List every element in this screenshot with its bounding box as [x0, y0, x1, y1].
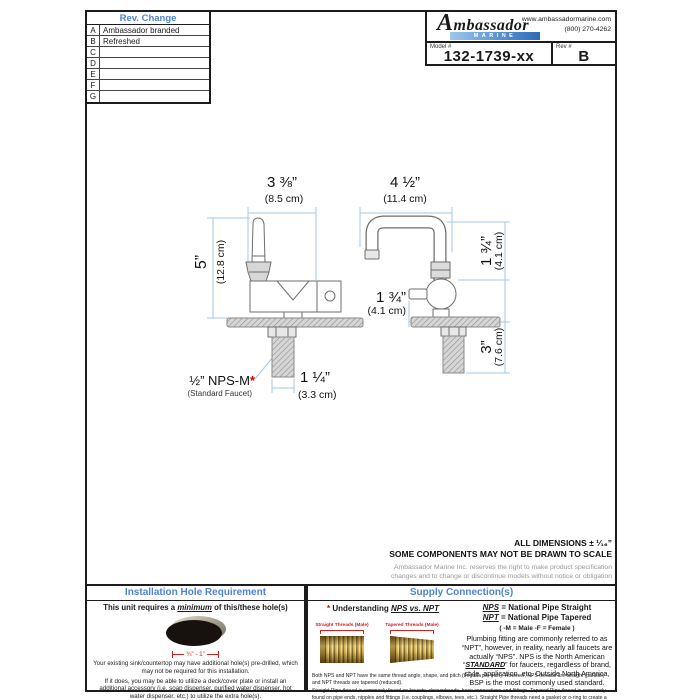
straight-thread-fitting-image: [320, 636, 364, 663]
installation-subtitle: This unit requires a minimum of this/the…: [87, 603, 304, 612]
installation-fine-print: Your existing sink/countertop may have a…: [87, 660, 304, 700]
model-row: Model # 132-1739-xx Rev # B: [427, 43, 615, 64]
supply-panel-title: Supply Connection(s): [308, 586, 615, 601]
pipe-thread-definitions: NPS = National Pipe Straight NPT = Natio…: [458, 603, 616, 632]
straight-threads-label: Straight Threads (Male): [304, 623, 380, 628]
paragraph-em: STANDARD: [465, 660, 505, 669]
subtitle-pre: This unit requires a: [103, 603, 177, 612]
straight-threads-bracket: [320, 630, 364, 634]
rev-change: [100, 47, 209, 57]
model-cell: Model # 132-1739-xx: [427, 43, 553, 64]
rev-change: [100, 69, 209, 79]
table-row: G: [87, 91, 209, 102]
understanding-pre: Understanding: [330, 604, 391, 613]
dim-side-reach-in: 4 ½”: [365, 174, 445, 191]
thread-spec-label: ½” NPS-M*: [117, 373, 255, 388]
hole-dimension-text: ¾” - 1”: [186, 651, 205, 658]
fine-print-line: Straight Pipe thread is commonly found o…: [312, 688, 611, 700]
drawing-notes: ALL DIMENSIONS ± ¹⁄₁₆” SOME COMPONENTS M…: [292, 538, 612, 581]
installation-hole-panel: Installation Hole Requirement This unit …: [85, 584, 306, 692]
installation-panel-title: Installation Hole Requirement: [87, 586, 304, 601]
hole-opening: [166, 620, 222, 646]
table-row: B Refreshed: [87, 36, 209, 47]
supply-connections-panel: Supply Connection(s) * Understanding NPS…: [306, 584, 617, 692]
rev-letter: D: [87, 58, 100, 68]
rev-label: Rev #: [556, 44, 572, 50]
npt-abbr: NPT: [483, 613, 499, 622]
dim-side-below-deck-cm: (7.6 cm): [493, 316, 505, 378]
rev-letter: F: [87, 80, 100, 90]
supply-panel-body: * Understanding NPS vs. NPT Straight Thr…: [308, 601, 615, 690]
nps-def: = National Pipe Straight: [499, 603, 591, 612]
thread-spec-sublabel: (Standard Faucet): [117, 389, 252, 398]
logo-row: Ambassador MARINE www.ambassadormarine.c…: [427, 12, 615, 43]
table-row: D: [87, 58, 209, 69]
npt-def: = National Pipe Tapered: [499, 613, 592, 622]
rev-letter: G: [87, 91, 100, 102]
dim-shank-width-cm: (3.3 cm): [298, 389, 337, 401]
rev-change: [100, 91, 209, 102]
table-row: F: [87, 80, 209, 91]
dim-front-height-cm: (12.8 cm): [215, 227, 227, 297]
tapered-thread-fitting-image: [390, 636, 434, 663]
tolerance-note: ALL DIMENSIONS ± ¹⁄₁₆”: [292, 538, 612, 549]
fine-print-line: If it does, you may be able to utilize a…: [92, 678, 299, 700]
dim-side-handle-in: 1 ¾”: [326, 289, 406, 306]
rev-letter: C: [87, 47, 100, 57]
model-label: Model #: [430, 44, 451, 50]
table-row: C: [87, 47, 209, 58]
tapered-threads-bracket: [390, 630, 434, 634]
rev-change: Ambassador branded: [100, 25, 209, 35]
revision-table: Rev. Change A Ambassador branded B Refre…: [85, 10, 211, 104]
rev-letter: B: [87, 36, 100, 46]
thread-spec-asterisk: *: [250, 373, 255, 388]
dim-side-spout-height-cm: (4.1 cm): [493, 220, 505, 282]
dim-side-spout-height-in: 1 ¾”: [478, 231, 494, 271]
rev-letter: E: [87, 69, 100, 79]
spec-sheet: Rev. Change A Ambassador branded B Refre…: [0, 0, 700, 700]
supply-fine-print: Both NPS and NPT have the same thread an…: [312, 673, 611, 700]
npt-definition: NPT = National Pipe Tapered: [458, 613, 616, 623]
tapered-threads-label: Tapered Threads (Male): [374, 623, 450, 628]
gender-note: ( -M = Male -F = Female ): [458, 625, 616, 632]
fine-print-line: Your existing sink/countertop may have a…: [92, 660, 299, 676]
understanding-em: NPS vs. NPT: [391, 604, 439, 613]
nps-definition: NPS = National Pipe Straight: [458, 603, 616, 613]
hole-dimension: ¾” - 1”: [87, 650, 304, 658]
disclaimer-line2: changes and to change or discontinue mod…: [292, 572, 612, 581]
dim-side-handle-cm: (4.1 cm): [326, 305, 406, 317]
rev-letter: A: [87, 25, 100, 35]
fine-print-line: Both NPS and NPT have the same thread an…: [312, 673, 611, 686]
rev-change: [100, 58, 209, 68]
disclaimer-line1: Ambassador Marine Inc. reserves the righ…: [292, 563, 612, 572]
table-row: A Ambassador branded: [87, 25, 209, 36]
dim-side-reach-cm: (11.4 cm): [365, 193, 445, 205]
rev-cell: Rev # B: [553, 43, 615, 64]
mounting-hole-image: [166, 616, 226, 649]
subtitle-em: minimum: [177, 603, 212, 612]
understanding-heading: * Understanding NPS vs. NPT: [308, 604, 458, 613]
scale-note: SOME COMPONENTS MAY NOT BE DRAWN TO SCAL…: [292, 549, 612, 560]
revision-table-title: Rev. Change: [87, 12, 209, 25]
thread-spec-text: ½” NPS-M: [189, 373, 250, 388]
dim-front-width-in: 3 ⅜”: [242, 174, 322, 191]
title-block: Ambassador MARINE www.ambassadormarine.c…: [425, 10, 617, 66]
dim-front-height-in: 5”: [194, 241, 210, 283]
contact-info: www.ambassadormarine.com (800) 270-4262: [522, 15, 611, 35]
dim-shank-width-in: 1 ¼”: [300, 369, 330, 386]
website: www.ambassadormarine.com: [522, 15, 611, 25]
subtitle-post: of this/these hole(s): [212, 603, 288, 612]
phone: (800) 270-4262: [522, 25, 611, 35]
nps-abbr: NPS: [483, 603, 499, 612]
rev-change: Refreshed: [100, 36, 209, 46]
dim-front-width-cm: (8.5 cm): [244, 193, 324, 205]
dim-side-below-deck-in: 3”: [478, 327, 494, 367]
rev-change: [100, 80, 209, 90]
table-row: E: [87, 69, 209, 80]
